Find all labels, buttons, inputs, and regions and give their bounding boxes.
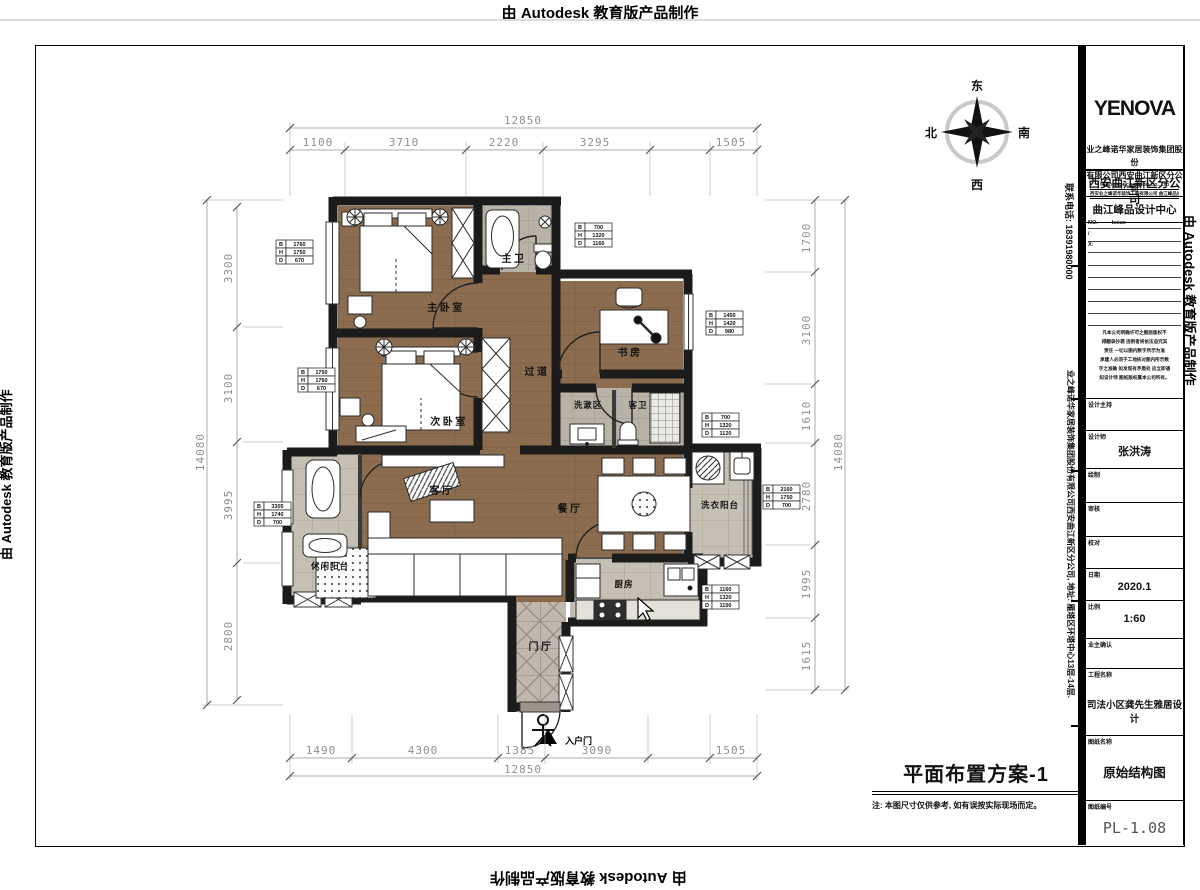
- coffee-table: [430, 500, 474, 522]
- dining-chair: [664, 534, 686, 550]
- compass-south: 南: [1018, 125, 1030, 140]
- svg-text:2160: 2160: [780, 487, 792, 493]
- svg-text:D: D: [301, 386, 305, 392]
- svg-text:700: 700: [273, 520, 282, 526]
- svg-text:D: D: [279, 258, 283, 264]
- svg-text:H: H: [279, 250, 283, 256]
- dim-right-2: 3100: [800, 315, 813, 346]
- svg-text:1450: 1450: [723, 313, 735, 319]
- shower: [650, 393, 680, 443]
- svg-text:B: B: [705, 415, 709, 421]
- wardrobe: [482, 338, 510, 432]
- drawing-sheet: 由 Autodesk 教育版产品制作 由 Autodesk 教育版产品制作 由 …: [0, 0, 1200, 890]
- svg-text:1420: 1420: [723, 321, 735, 327]
- compass-west: 西: [971, 178, 983, 192]
- study-window: [684, 294, 693, 350]
- svg-text:D: D: [766, 503, 770, 509]
- no-label: NO.: [1088, 220, 1098, 226]
- svg-text:B: B: [705, 587, 709, 593]
- disclaimer: 凡本公司明确许可之图面版权不 得翻录抄袭 违例者将依法追究其 责任 一切以图内数…: [1089, 328, 1180, 382]
- field-drawn-by: 绘制: [1086, 468, 1183, 503]
- dining-chair: [633, 458, 655, 474]
- dim-left-4: 2800: [222, 621, 235, 652]
- dim-left-1: 3300: [222, 253, 235, 284]
- room-label-second-bedroom: 次卧室: [430, 415, 468, 428]
- dim-right-1: 1700: [800, 223, 813, 254]
- dim-left-3: 3995: [222, 490, 235, 521]
- svg-text:1320: 1320: [719, 595, 731, 601]
- svg-text:D: D: [705, 603, 709, 609]
- dining-chair: [602, 534, 624, 550]
- floor-plan-svg: 入户门 主卫 主卧室 书房 过道 次卧室 洗漱区 客卫 客厅 餐厅 洗衣阳台 休…: [0, 0, 1200, 890]
- room-label-study: 书房: [618, 346, 643, 359]
- issue-row: [1088, 291, 1181, 302]
- company-logo: YENOVA: [1086, 97, 1183, 121]
- svg-text:B: B: [766, 487, 770, 493]
- dim-right-5: 1995: [800, 569, 813, 600]
- dim-bottom-2: 4300: [408, 744, 439, 757]
- stove: [594, 600, 626, 620]
- svg-text:B: B: [257, 504, 261, 510]
- dim-left-2: 3100: [222, 373, 235, 404]
- room-label-kitchen: 厨房: [614, 579, 633, 589]
- dim-bottom-4: 3090: [582, 744, 613, 757]
- svg-text:H: H: [257, 512, 261, 518]
- svg-text:1750: 1750: [293, 250, 305, 256]
- issue-label: Issue: [1112, 220, 1126, 226]
- room-label-dining: 餐厅: [557, 502, 583, 515]
- room-label-living: 客厅: [429, 484, 455, 497]
- svg-text:1320: 1320: [719, 423, 731, 429]
- dim-top-2: 3710: [389, 136, 420, 149]
- field-design-director: 设计主持: [1086, 398, 1183, 431]
- dim-top-5: 1505: [716, 136, 747, 149]
- dim-top-3: 2220: [489, 136, 520, 149]
- field-reviewed-by: 审核: [1086, 502, 1183, 537]
- dim-right-total: 14080: [832, 433, 845, 471]
- titleblock: YENOVA 业之峰诺华家居装饰集团股份 有限公司西安曲江新区分公司 YENOV…: [1086, 45, 1184, 845]
- svg-text:H: H: [705, 423, 709, 429]
- svg-text:B: B: [279, 242, 283, 248]
- dim-bottom-3: 1385: [505, 744, 536, 757]
- svg-text:D: D: [709, 329, 713, 335]
- ruler-tick: [1071, 265, 1078, 267]
- room-label-master-bedroom: 主卧室: [427, 301, 465, 314]
- dining-chair: [633, 534, 655, 550]
- field-designer: 设计师张洪涛: [1086, 430, 1183, 469]
- dim-table: B1160H1320D1100: [702, 585, 739, 609]
- svg-text:980: 980: [725, 329, 734, 335]
- field-scale: 比例1:60: [1086, 600, 1183, 639]
- fridge: [576, 564, 600, 598]
- svg-text:D: D: [705, 431, 709, 437]
- svg-text:H: H: [705, 595, 709, 601]
- svg-text:1160: 1160: [720, 587, 732, 593]
- dim-bottom-1: 1490: [306, 744, 337, 757]
- field-date: 日期2020.1: [1086, 568, 1183, 601]
- ruler-tick: [1071, 398, 1078, 400]
- svg-text:H: H: [766, 495, 770, 501]
- titleblock-bar: [1078, 45, 1086, 845]
- dim-table: B700H1320D1160: [575, 223, 612, 247]
- dim-bottom-5: 1505: [716, 744, 747, 757]
- dim-left-total: 14080: [194, 433, 207, 471]
- field-owner-confirm: 业主确认: [1086, 638, 1183, 669]
- laundry-sink: [730, 452, 754, 480]
- svg-text:1740: 1740: [271, 512, 283, 518]
- svg-text:700: 700: [782, 503, 791, 509]
- ruler-tick: [1071, 600, 1078, 602]
- dim-table: B2160H1750D700: [763, 485, 800, 509]
- toilet-icon: [618, 422, 638, 445]
- dining-table: [598, 476, 690, 532]
- ruler-tick: [1071, 725, 1078, 727]
- plan-footer: 平面布置方案-1 注: 本图尺寸仅供参考, 如有误按实际现场而定。: [872, 758, 1080, 811]
- dining-chair: [664, 458, 686, 474]
- ruler-tick: [1071, 470, 1078, 472]
- wash-vanity: [570, 424, 604, 446]
- compass: 东 南 西 北: [925, 78, 1030, 192]
- room-label-guest-bath: 客卫: [627, 400, 647, 410]
- svg-text:H: H: [301, 378, 305, 384]
- washing-machine-icon: [692, 452, 724, 484]
- room-label-master-bath: 主卫: [502, 252, 527, 265]
- svg-text:1100: 1100: [720, 603, 732, 609]
- svg-text:1760: 1760: [293, 242, 305, 248]
- svg-text:670: 670: [317, 386, 326, 392]
- svg-text:700: 700: [721, 415, 730, 421]
- issue-row: /: [1088, 231, 1181, 242]
- dim-top-1: 1100: [303, 136, 334, 149]
- room-label-wash-area: 洗漱区: [574, 400, 603, 410]
- issue-row: [1088, 279, 1181, 290]
- field-drawing-number: 图纸编号PL-1.08: [1086, 800, 1183, 846]
- entry-threshold: [520, 702, 560, 712]
- dim-bottom-total: 12850: [504, 763, 542, 776]
- dim-right-3: 1610: [800, 401, 813, 432]
- issue-row: [1088, 303, 1181, 314]
- planter: [306, 460, 340, 518]
- dim-table: B1750H1760D670: [298, 368, 335, 392]
- issue-row: [1088, 255, 1181, 266]
- room-label-hallway: 过道: [525, 365, 550, 378]
- balcony-basin: [303, 534, 347, 557]
- master-window: [326, 222, 339, 304]
- kitchen-sink: [664, 564, 698, 596]
- company-name-line1: 业之峰诺华家居装饰集团股份: [1086, 143, 1183, 169]
- room-label-laundry: 洗衣阳台: [701, 500, 739, 510]
- svg-text:H: H: [709, 321, 713, 327]
- room-label-foyer: 门厅: [529, 640, 554, 653]
- svg-text:1120: 1120: [720, 431, 732, 437]
- svg-text:3305: 3305: [271, 504, 283, 510]
- dim-top-4: 3295: [580, 136, 611, 149]
- toilet-icon: [534, 244, 552, 269]
- field-proofread-by: 校对: [1086, 536, 1183, 569]
- plan-title: 平面布置方案-1: [872, 758, 1080, 795]
- issue-row: [1088, 267, 1181, 278]
- issue-row: [1088, 315, 1181, 326]
- field-drawing-name: 图纸名称原始结构图: [1086, 735, 1183, 801]
- svg-text:1750: 1750: [315, 370, 327, 376]
- field-project-name: 工程名称司法小区龚先生雅居设计: [1086, 668, 1183, 736]
- svg-text:1750: 1750: [780, 495, 792, 501]
- room-label-leisure: 休闲阳台: [310, 561, 349, 571]
- dim-right-6: 1615: [800, 641, 813, 672]
- dim-top-total: 12850: [504, 114, 542, 127]
- issue-header: NO.Issue: [1088, 220, 1181, 229]
- tv-cabinet: [382, 455, 504, 467]
- svg-text:1320: 1320: [592, 233, 604, 239]
- dim-table: B3305H1740D700: [254, 502, 291, 526]
- foyer-floor: [512, 602, 566, 710]
- dim-table: B1450H1420D980: [706, 311, 743, 335]
- dim-right-4: 2780: [800, 481, 813, 512]
- svg-text:H: H: [578, 233, 582, 239]
- svg-text:B: B: [709, 313, 713, 319]
- dim-table: B1760H1750D670: [276, 240, 313, 264]
- wardrobe: [452, 208, 474, 278]
- compass-east: 东: [971, 78, 983, 93]
- issue-row: X:: [1088, 242, 1181, 253]
- svg-text:D: D: [578, 241, 582, 247]
- compass-north: 北: [925, 125, 937, 140]
- design-center-name: 曲江峰品设计中心: [1086, 196, 1183, 223]
- office-chair: [616, 288, 642, 308]
- svg-text:700: 700: [594, 225, 603, 231]
- dining-chair: [602, 458, 624, 474]
- svg-text:D: D: [257, 520, 261, 526]
- svg-text:B: B: [301, 370, 305, 376]
- svg-text:670: 670: [295, 258, 304, 264]
- svg-text:B: B: [578, 225, 582, 231]
- dim-table: B700H1320D1120: [702, 413, 739, 437]
- desk: [600, 310, 668, 344]
- plan-note: 注: 本图尺寸仅供参考, 如有误按实际现场而定。: [872, 800, 1080, 811]
- svg-text:1760: 1760: [315, 378, 327, 384]
- svg-text:1160: 1160: [593, 241, 605, 247]
